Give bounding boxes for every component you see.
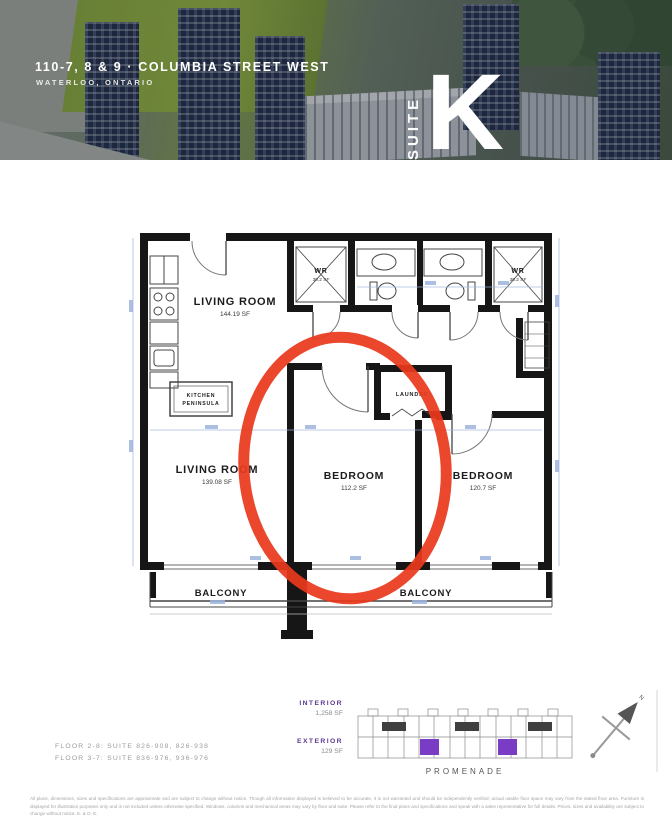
- interior-value: 1,258 SF: [315, 710, 343, 717]
- exterior-label: EXTERIOR: [297, 738, 343, 745]
- wr-left-label: WR: [314, 268, 327, 275]
- exterior-value: 129 SF: [321, 748, 343, 755]
- bedroom-circled-label: BEDROOM: [324, 470, 384, 482]
- interior-label: INTERIOR: [299, 700, 343, 707]
- living-upper-label: LIVING ROOM: [194, 296, 277, 308]
- keyplan: PROMENADE: [358, 709, 572, 776]
- wr-right-area: 30.2 SF: [510, 277, 527, 283]
- bedroom-right-label: BEDROOM: [453, 470, 513, 482]
- floor-suite-line1: FLOOR 2-8: SUITE 826-908, 826-938: [55, 743, 209, 750]
- kitchen-label-line2: PENINSULA: [182, 401, 219, 407]
- floor-suite-line2: FLOOR 3-7: SUITE 836-976, 936-976: [55, 755, 209, 762]
- living-upper-area: 144.19 SF: [220, 311, 250, 318]
- wr-right-label: WR: [511, 268, 524, 275]
- keyplan-street-label: PROMENADE: [426, 767, 505, 776]
- brochure-page: 110-7, 8 & 9 · COLUMBIA STREET WEST WATE…: [0, 0, 672, 826]
- detail-strip: FLOOR 2-8: SUITE 826-908, 826-938 FLOOR …: [0, 680, 672, 792]
- kitchen-label-line1: KITCHEN: [187, 393, 216, 399]
- bedroom-circled-area: 112.2 SF: [341, 485, 367, 492]
- wr-left-area: 30.2 SF: [313, 277, 330, 283]
- address-line: 110-7, 8 & 9 · COLUMBIA STREET WEST: [35, 60, 329, 74]
- compass-icon: N: [577, 684, 656, 769]
- suite-letter: K: [426, 58, 504, 160]
- bedroom-right-area: 120.7 SF: [470, 485, 496, 492]
- suite-word: SUITE: [405, 82, 422, 160]
- kitchen-fixtures: [150, 256, 232, 416]
- living-lower-area: 139.08 SF: [202, 479, 232, 486]
- compass-north-label: N: [637, 694, 644, 701]
- window-lines: [164, 565, 538, 569]
- balcony-right-label: BALCONY: [400, 588, 453, 599]
- door-arcs: [192, 241, 528, 454]
- header-photo: 110-7, 8 & 9 · COLUMBIA STREET WEST WATE…: [0, 0, 672, 160]
- balcony-left-label: BALCONY: [195, 588, 248, 599]
- keyplan-highlight-unit: [420, 739, 439, 755]
- floor-plan: LIVING ROOM 144.19 SF WR 30.2 SF WR 30.2…: [0, 160, 672, 680]
- disclaimer-text: All plans, dimensions, sizes and specifi…: [30, 795, 644, 818]
- keyplan-highlight-unit: [498, 739, 517, 755]
- city-line: WATERLOO, ONTARIO: [36, 78, 154, 87]
